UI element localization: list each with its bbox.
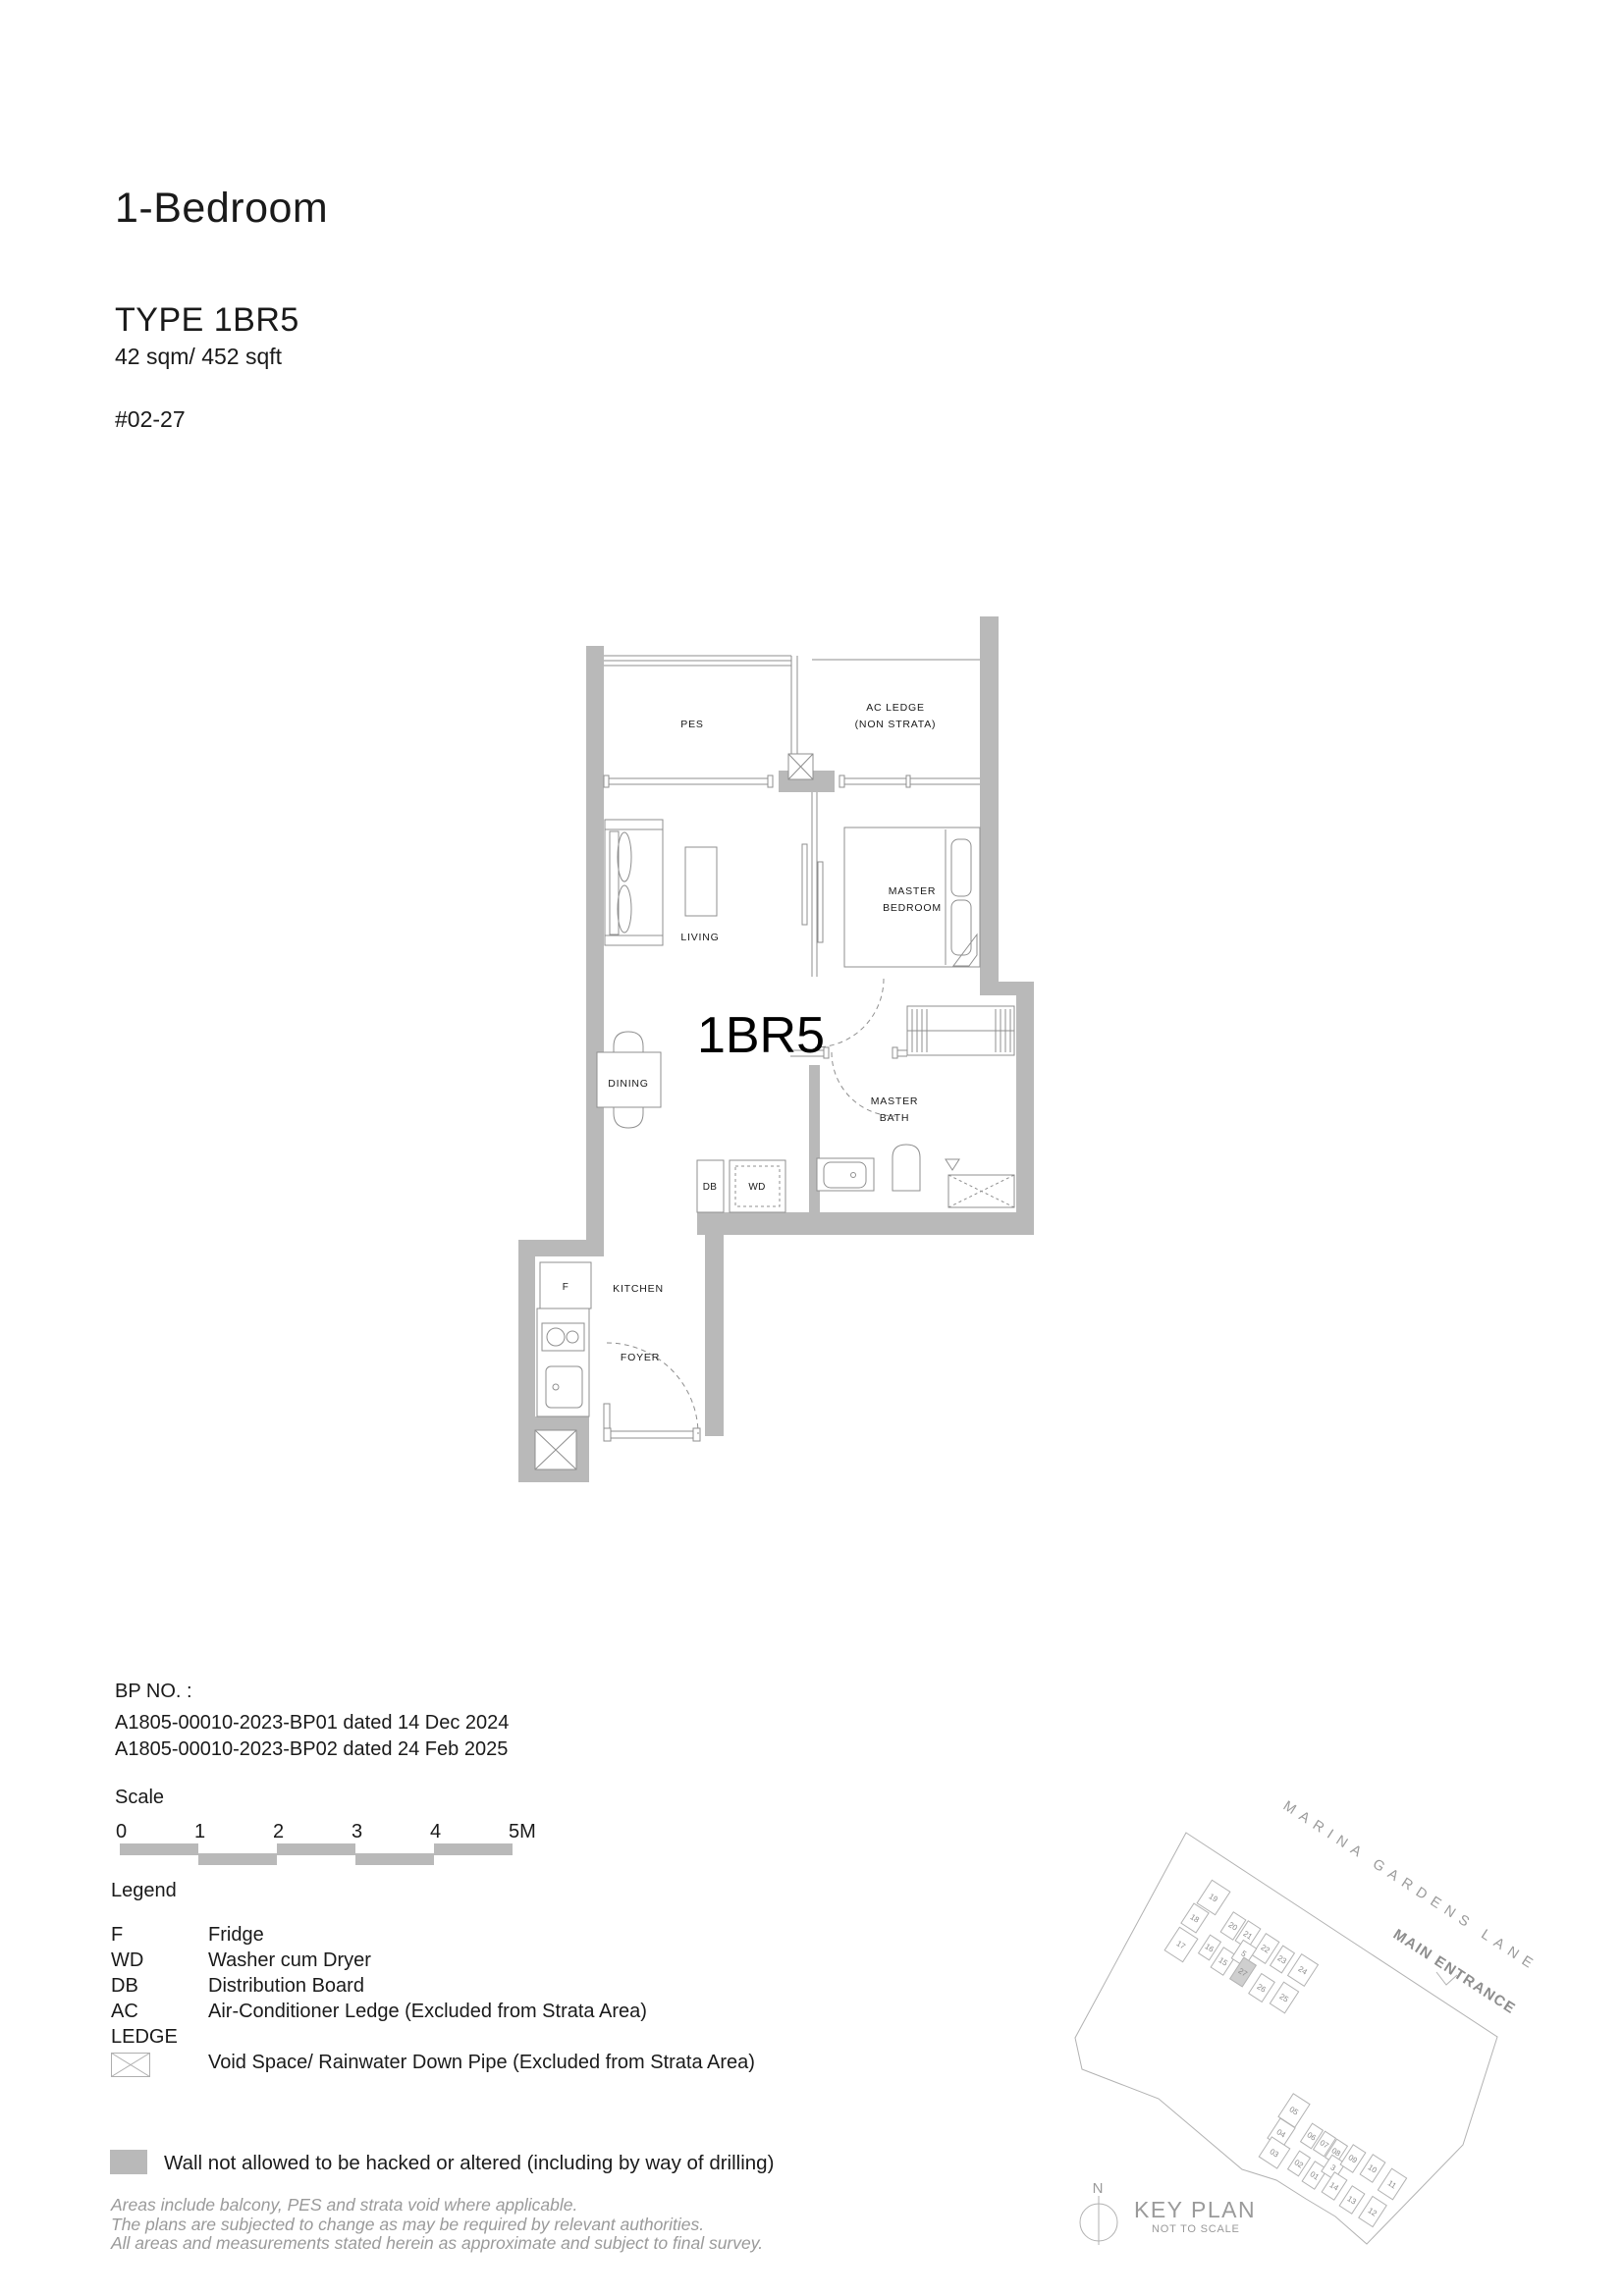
door-post [693,1428,700,1441]
keyplan-units: 1918172021222324161552726250504030201060… [1164,1880,1406,2226]
window-post [839,775,844,787]
legend-term: DB [111,1973,208,1999]
void-space-icon [111,2053,150,2077]
label-unit-type: 1BR5 [697,1007,825,1064]
pes-railing [604,656,791,666]
key-plan: MARINA GARDENS LANE MAIN ENTRANCE 191817… [1041,1757,1623,2296]
page-title: 1-Bedroom [115,185,328,233]
legend-desc: Distribution Board [208,1973,364,1999]
north-label: N [1093,2180,1104,2197]
dining-chair [614,1107,643,1128]
toilet [893,1145,920,1191]
legend-desc: Fridge [208,1922,264,1948]
wall-left [586,646,604,1240]
legend-desc: Washer cum Dryer [208,1948,371,1973]
legend-desc: Void Space/ Rainwater Down Pipe (Exclude… [208,2050,755,2075]
label-fridge: F [563,1282,568,1293]
legend-row: AC LEDGE Air-Conditioner Ledge (Excluded… [111,1999,755,2050]
scale-segment [198,1853,277,1865]
door-threshold [611,1431,693,1438]
legend-desc: Air-Conditioner Ledge (Excluded from Str… [208,1999,647,2024]
plan-labels: PES AC LEDGE (NON STRATA) MASTER BEDROOM… [563,702,942,1363]
pes-ledge-divider [791,656,797,754]
keyplan-subtitle: NOT TO SCALE [1152,2223,1240,2235]
north-compass-icon: N [1080,2180,1117,2245]
void-symbol [111,2050,208,2084]
wall-foyer-right [705,1227,724,1436]
label-ac-ledge-2: (NON STRATA) [855,719,937,730]
window-post [768,775,773,787]
scale-tick: 5M [509,1821,536,1842]
wall-kitchen-jog [518,1240,604,1256]
wall-bottom-band [697,1212,1034,1235]
floor-plan: PES AC LEDGE (NON STRATA) MASTER BEDROOM… [515,609,1041,1492]
unit-type-title: TYPE 1BR5 [115,301,299,340]
scale-tick: 4 [430,1821,441,1842]
wall-right-lower [1016,993,1034,1212]
bed [844,828,980,967]
scale-tick: 3 [352,1821,362,1842]
scale-segment [434,1843,513,1855]
legend-row: F Fridge [111,1922,755,1948]
label-kitchen: KITCHEN [613,1283,664,1295]
dining-chair [614,1032,643,1052]
disclaimer-line: All areas and measurements stated herein… [111,2234,763,2254]
label-living: LIVING [680,932,719,943]
scale-segment [120,1843,198,1855]
label-master-bath-2: BATH [880,1112,909,1124]
door-post [893,1047,897,1058]
label-db: DB [703,1182,718,1193]
label-ac-ledge-1: AC LEDGE [866,702,925,714]
sliding-panel [802,844,807,925]
bp-line-1: A1805-00010-2023-BP01 dated 14 Dec 2024 [115,1710,509,1736]
door-leaf [604,1404,610,1428]
label-dining: DINING [608,1078,649,1090]
bp-line-2: A1805-00010-2023-BP02 dated 24 Feb 2025 [115,1736,509,1763]
label-master-bedroom-1: MASTER [889,885,937,897]
legend-term: F [111,1922,208,1948]
unit-area: 42 sqm/ 452 sqft [115,344,282,370]
disclaimer-line: Areas include balcony, PES and strata vo… [111,2196,763,2216]
disclaimer: Areas include balcony, PES and strata vo… [111,2196,763,2254]
scale-heading: Scale [115,1787,164,1809]
label-master-bedroom-2: BEDROOM [883,902,942,914]
sofa [605,820,663,945]
bedroom-door-arc [815,979,884,1047]
legend-row: DB Distribution Board [111,1973,755,1999]
scale-tick: 2 [273,1821,284,1842]
legend-heading: Legend [111,1880,177,1902]
wall-kitchen-left [518,1256,535,1482]
bp-heading: BP NO. : [115,1679,509,1705]
window-post [604,775,609,787]
legend-list: F Fridge WD Washer cum Dryer DB Distribu… [111,1922,755,2084]
wall-right-step [980,982,1034,995]
shower-trap [946,1159,959,1170]
scale-tick: 1 [194,1821,205,1842]
label-foyer: FOYER [621,1352,660,1363]
tv-console [685,847,717,916]
unit-number: #02-27 [115,406,186,433]
keyplan-title: KEY PLAN [1134,2197,1256,2222]
scale-tick: 0 [116,1821,127,1842]
legend-row: WD Washer cum Dryer [111,1948,755,1973]
label-pes: PES [680,719,703,730]
wall-void-side [576,1430,589,1482]
legend-term: WD [111,1948,208,1973]
door-post [604,1428,611,1441]
wall-notice: Wall not allowed to be hacked or altered… [164,2152,774,2175]
scale-segment [355,1853,434,1865]
wall-under-counter [518,1416,589,1430]
scale-bar: 0 1 2 3 4 5M [115,1814,537,1869]
wall-right-upper [980,616,999,989]
floorplan-page: { "header": { "title": "1-Bedroom", "typ… [0,0,1623,2296]
label-wd: WD [748,1182,765,1193]
sliding-panel [818,862,823,942]
window-living [604,778,773,784]
sliding-wall [812,792,817,977]
scale-segment [277,1843,355,1855]
legend-row-void: Void Space/ Rainwater Down Pipe (Exclude… [111,2050,755,2084]
wall-swatch [110,2150,147,2174]
kitchen-counter [537,1308,589,1416]
window-post [906,775,910,787]
legend-term: AC LEDGE [111,1999,208,2050]
disclaimer-line: The plans are subjected to change as may… [111,2216,763,2235]
label-master-bath-1: MASTER [871,1095,919,1107]
bp-block: BP NO. : A1805-00010-2023-BP01 dated 14 … [115,1679,509,1763]
